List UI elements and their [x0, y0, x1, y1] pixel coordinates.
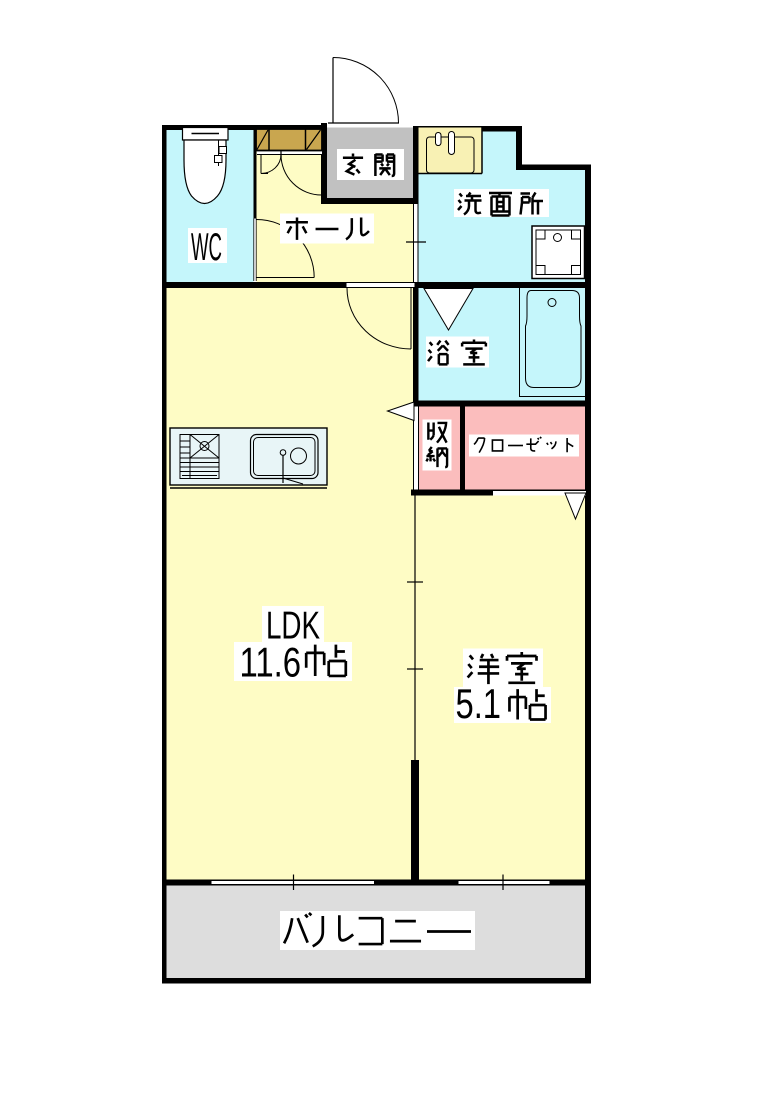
svg-text:5.1: 5.1 — [456, 680, 502, 727]
svg-text:WC: WC — [191, 226, 222, 269]
svg-text:11.6: 11.6 — [240, 639, 302, 686]
